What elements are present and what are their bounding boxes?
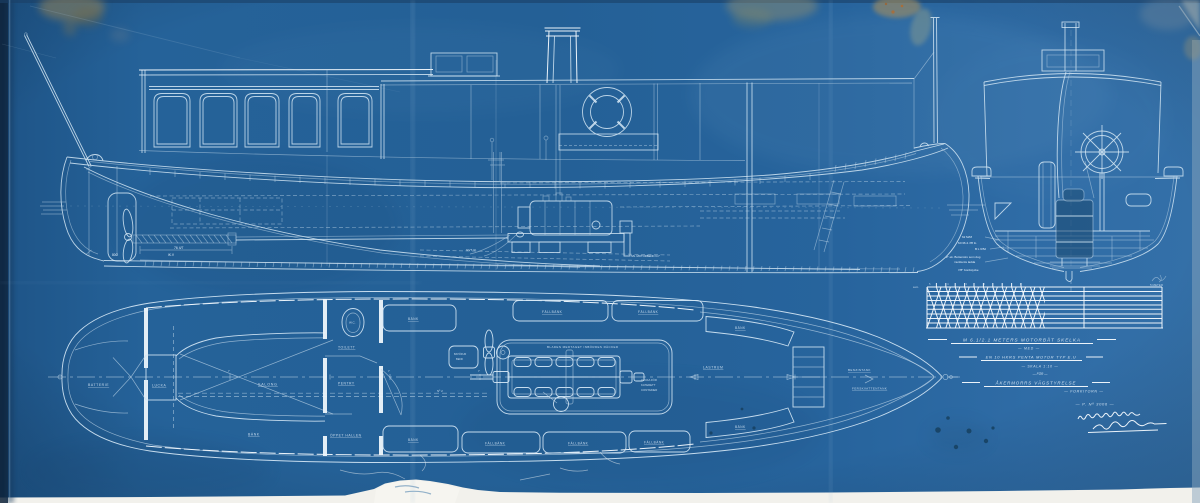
svg-text:EN 10 HKRS PENTA MOTOR TYP E.U: EN 10 HKRS PENTA MOTOR TYP E.U [986, 355, 1077, 360]
svg-text:LASTRUM: LASTRUM [703, 366, 723, 370]
svg-text:FERSKVATTENTANK: FERSKVATTENTANK [852, 387, 887, 391]
svg-text:M 6.1/2.1 METERS MOTORBÅT SKEL: M 6.1/2.1 METERS MOTORBÅT SKELKA [963, 337, 1081, 343]
svg-text:BÄNK: BÄNK [408, 317, 419, 321]
svg-text:BLADEN MEDTAGET INBÖRDES RÄCKE: BLADEN MEDTAGET INBÖRDES RÄCKER [547, 345, 619, 349]
svg-text:BENZINTANK: BENZINTANK [848, 368, 871, 372]
svg-text:CONTAINER: CONTAINER [641, 388, 657, 392]
svg-text:PENTRY: PENTRY [338, 382, 355, 386]
svg-text:BENK: BENK [456, 357, 463, 361]
svg-text:W.C.: W.C. [349, 321, 356, 325]
svg-text:— FORKITORN —: — FORKITORN — [1063, 390, 1103, 394]
svg-text:FÄLLBÄNK: FÄLLBÄNK [542, 310, 563, 314]
svg-text:FÄLLBÄNK: FÄLLBÄNK [568, 442, 589, 446]
svg-text:— SKALA 1:10 —: — SKALA 1:10 — [1021, 365, 1059, 369]
svg-text:BÄNK: BÄNK [408, 438, 419, 442]
svg-text:KATERETT: KATERETT [641, 383, 656, 387]
svg-text:B:L 6/52: B:L 6/52 [975, 247, 986, 251]
svg-text:— FÖR —: — FÖR — [1032, 372, 1049, 376]
svg-text:o.m.: o.m. [913, 285, 919, 289]
svg-text:FÄLLBÄNK: FÄLLBÄNK [485, 442, 506, 446]
svg-text:murklents ladda: murklents ladda [954, 260, 976, 264]
svg-text:FÄLLBÄNK: FÄLLBÄNK [638, 310, 659, 314]
svg-text:LUCKA FÖR: LUCKA FÖR [641, 378, 657, 382]
svg-text:2" ek. Bottenstro som dog: 2" ek. Bottenstro som dog [946, 255, 981, 259]
svg-text:7/8" bordstycke: 7/8" bordstycke [958, 268, 979, 272]
svg-text:BÄNK: BÄNK [735, 326, 746, 330]
svg-text:62 M/M: 62 M/M [962, 235, 973, 239]
svg-text:BÄNK: BÄNK [248, 433, 260, 437]
svg-text:BÄNK: BÄNK [735, 425, 746, 429]
svg-text:FÄLLBÄNK: FÄLLBÄNK [644, 441, 665, 445]
svg-text:80⁄2: 80⁄2 [112, 253, 118, 257]
svg-text:BATTERIE: BATTERIE [88, 383, 109, 387]
svg-text:76 4/7: 76 4/7 [174, 246, 184, 250]
svg-text:IK.V: IK.V [168, 253, 175, 257]
svg-text:ÖPPET HALLEN: ÖPPET HALLEN [330, 434, 362, 438]
svg-text:Nº 2: Nº 2 [437, 389, 443, 393]
svg-text:5 METER: 5 METER [1150, 283, 1164, 287]
svg-text:— P. Nº 3006 —: — P. Nº 3006 — [1075, 402, 1115, 407]
svg-text:BATÖFUR: BATÖFUR [454, 352, 466, 356]
svg-text:SALONG: SALONG [258, 383, 278, 387]
svg-text:TOILETT: TOILETT [338, 346, 355, 350]
svg-text:5 4 3 2 1 0: 5 4 3 2 1 0 [929, 282, 1029, 286]
svg-text:M=36.4·7⁄8 fo: M=36.4·7⁄8 fo [958, 241, 977, 245]
svg-text:— MED —: — MED — [1017, 347, 1040, 351]
svg-text:LUCKA: LUCKA [152, 384, 166, 388]
svg-text:ÅKERMORRS VÄGSTYRELSE: ÅKERMORRS VÄGSTYRELSE [995, 381, 1077, 386]
